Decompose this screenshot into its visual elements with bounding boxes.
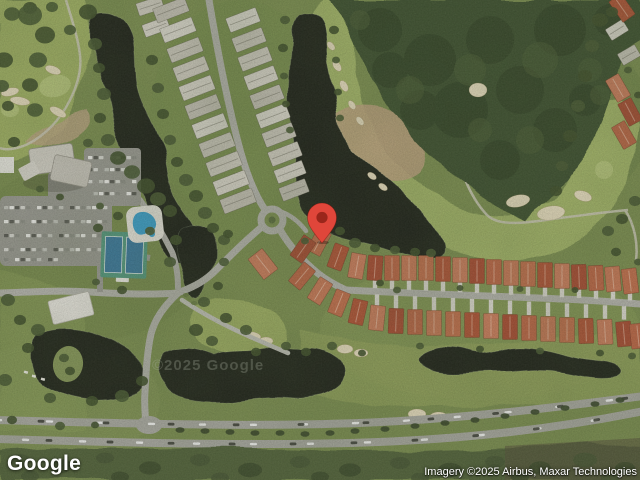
map-canvas[interactable]: ©2025 Google Google Imagery ©2025 Airbus… <box>0 0 640 480</box>
pin-inner-dot <box>316 212 327 223</box>
google-logo[interactable]: Google <box>7 452 81 476</box>
location-pin-icon[interactable] <box>306 202 338 244</box>
